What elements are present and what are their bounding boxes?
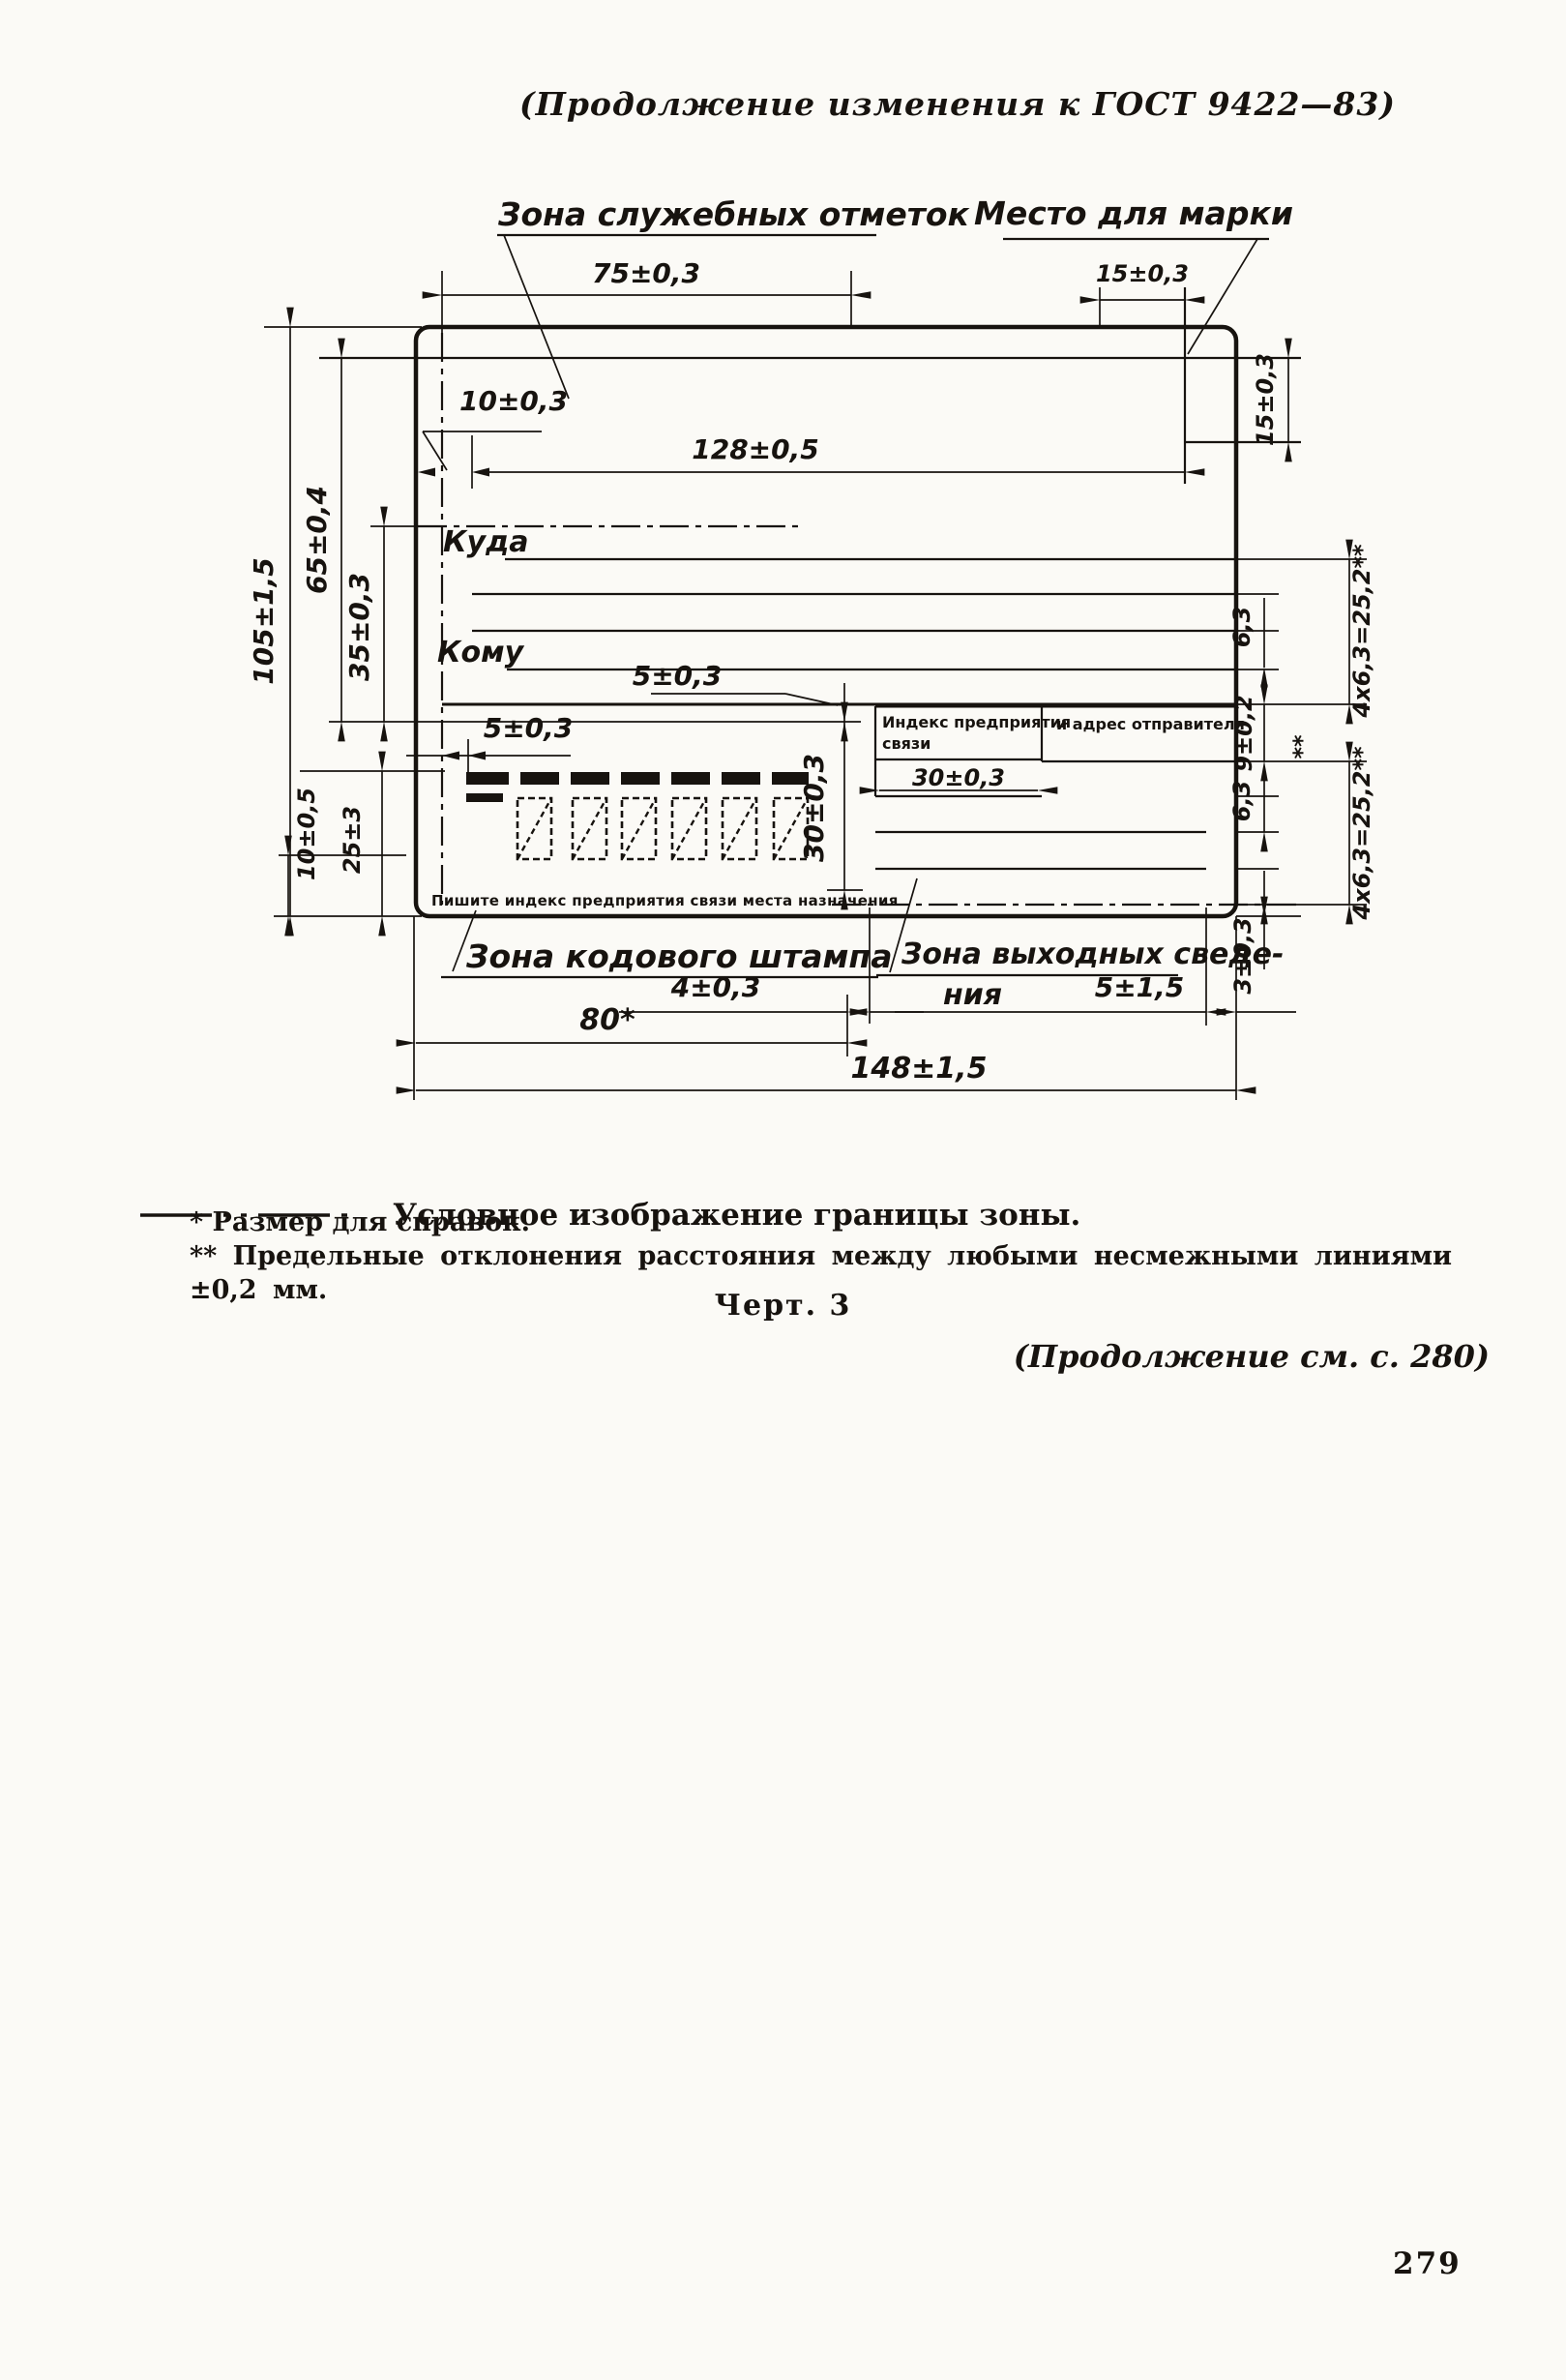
svg-text:5±0,3: 5±0,3 (633, 660, 723, 692)
svg-text:148±1,5: 148±1,5 (851, 1052, 988, 1086)
dim-80: 80* (416, 1003, 847, 1043)
stamp-place-label: Место для марки (974, 194, 1293, 232)
svg-text:5±1,5: 5±1,5 (1095, 971, 1185, 1003)
dim-4x63-lower: 4x6,3=25,2** (1348, 746, 1375, 921)
svg-text:4x6,3=25,2**: 4x6,3=25,2** (1348, 746, 1375, 921)
dim-30-box: 30±0,3 (798, 722, 863, 890)
dim-25: 25±3 (300, 771, 445, 916)
output-info-zone-callout: Зона выходных сведе- ния (876, 878, 1284, 1012)
svg-text:80*: 80* (579, 1003, 635, 1037)
dim-9: 9±0,2 ** (1230, 695, 1315, 771)
kuda-label: Куда (443, 525, 529, 559)
svg-text:35±0,3: 35±0,3 (343, 573, 375, 681)
svg-text:6,3: 6,3 (1228, 781, 1256, 822)
dim-35: 35±0,3 (343, 526, 384, 722)
continuation-note: (Продолжение см. с. 280) (967, 1338, 1490, 1375)
output-info-zone-label-2: ния (943, 978, 1002, 1012)
svg-text:6,3: 6,3 (1228, 607, 1256, 648)
svg-text:4±0,3: 4±0,3 (670, 971, 761, 1003)
service-zone-callout: Зона служебных отметок (497, 195, 971, 399)
dim-148: 148±1,5 (416, 1052, 1236, 1090)
service-zone-label: Зона служебных отметок (497, 195, 971, 233)
code-stamp-zone-label: Зона кодового штампа (465, 937, 893, 975)
svg-text:10±0,5: 10±0,5 (293, 788, 320, 880)
svg-text:25±3: 25±3 (339, 806, 366, 874)
zone-boundary-lines (370, 271, 1301, 905)
svg-text:105±1,5: 105±1,5 (248, 557, 280, 685)
index-box-left-text-2: связи (882, 734, 931, 753)
dim-75: 75±0,3 (442, 257, 851, 327)
index-box-right-text: и адрес отправителя (1056, 715, 1245, 733)
svg-text:10±0,3: 10±0,3 (459, 385, 568, 417)
dim-63-upper: 6,3 (1228, 598, 1264, 668)
dim-65: 65±0,4 (301, 358, 341, 722)
dim-128: 128±0,5 (489, 433, 1185, 472)
output-info-zone-label-1: Зона выходных сведе- (901, 937, 1284, 971)
svg-text:128±0,5: 128±0,5 (692, 433, 819, 465)
code-stamp-zone-callout: Зона кодового штампа (441, 910, 893, 977)
scanned-standard-page: (Продолжение изменения к ГОСТ 9422—83) (0, 0, 1566, 2380)
dim-63-lower: 6,3 (1228, 769, 1264, 832)
index-box-left-text-1: Индекс предприятия (882, 713, 1071, 731)
dim-4: 4±0,3 (619, 907, 924, 1056)
svg-text:30±0,3: 30±0,3 (798, 754, 830, 862)
figure-caption: Черт. 3 (0, 1289, 1566, 1323)
dim-15-right: 15±0,3 (1252, 353, 1288, 446)
write-index-note: Пишите индекс предприятия связи места на… (431, 892, 899, 909)
svg-text:75±0,3: 75±0,3 (592, 257, 700, 289)
page-number: 279 (1393, 2246, 1462, 2281)
footnote-1: * Размер для справок. (190, 1205, 1491, 1239)
svg-text:65±0,4: 65±0,4 (301, 486, 333, 594)
address-lines: Куда Кому (329, 525, 1236, 722)
stamp-box (1185, 287, 1301, 484)
dim-105: 105±1,5 (248, 327, 290, 916)
dim-9-stars: ** (1288, 734, 1315, 759)
svg-text:9±0,2: 9±0,2 (1230, 695, 1257, 771)
postal-code-boxes (517, 798, 808, 859)
svg-text:15±0,3: 15±0,3 (1096, 260, 1189, 287)
svg-text:15±0,3: 15±0,3 (1252, 353, 1279, 446)
sender-index-box: Индекс предприятия связи и адрес отправи… (875, 706, 1245, 869)
svg-text:5±0,3: 5±0,3 (484, 712, 574, 744)
dim-4x63-upper: 4x6,3=25,2** (1348, 544, 1375, 719)
dim-15-top: 15±0,3 (1096, 260, 1189, 327)
svg-text:4x6,3=25,2**: 4x6,3=25,2** (1348, 544, 1375, 719)
komu-label: Кому (437, 636, 525, 669)
dim-30-index: 30±0,3 (912, 764, 1005, 791)
envelope-drawing: Куда Кому Индекс предприятия связи и адр… (0, 0, 1566, 1200)
dim-10-top: 10±0,3 (418, 385, 568, 489)
